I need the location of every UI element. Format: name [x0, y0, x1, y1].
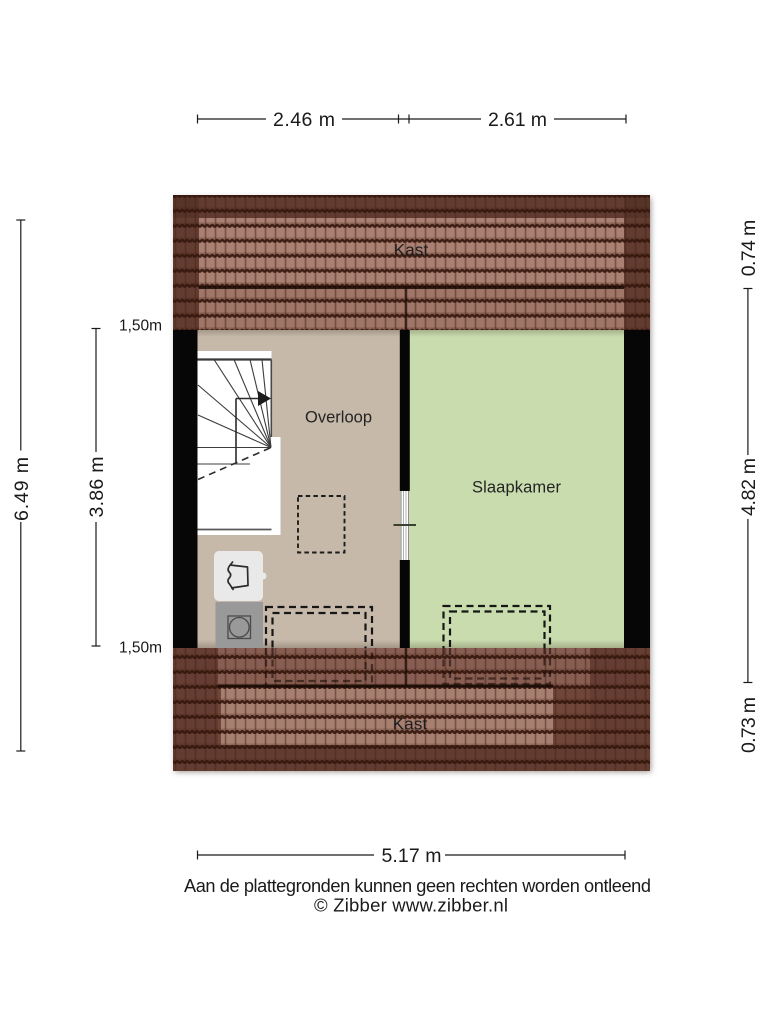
- svg-text:6.49 m: 6.49 m: [11, 457, 33, 521]
- svg-text:3.86 m: 3.86 m: [86, 457, 108, 518]
- svg-text:0.74 m: 0.74 m: [738, 220, 760, 277]
- svg-text:Overloop: Overloop: [305, 409, 372, 427]
- svg-text:Slaapkamer: Slaapkamer: [472, 479, 562, 497]
- svg-text:1,50m: 1,50m: [119, 640, 162, 657]
- svg-text:4.82 m: 4.82 m: [738, 458, 760, 516]
- svg-text:1,50m: 1,50m: [119, 318, 162, 335]
- svg-text:Kast: Kast: [393, 715, 428, 734]
- svg-text:0.73 m: 0.73 m: [738, 697, 760, 753]
- svg-text:5.17 m: 5.17 m: [382, 845, 442, 867]
- svg-text:2.46 m: 2.46 m: [273, 109, 335, 131]
- svg-text:Aan de plattegronden kunnen ge: Aan de plattegronden kunnen geen rechten…: [184, 876, 651, 896]
- svg-text:Kast: Kast: [394, 241, 429, 260]
- svg-text:2.61 m: 2.61 m: [488, 109, 547, 131]
- svg-text:© Zibber www.zibber.nl: © Zibber www.zibber.nl: [314, 895, 508, 916]
